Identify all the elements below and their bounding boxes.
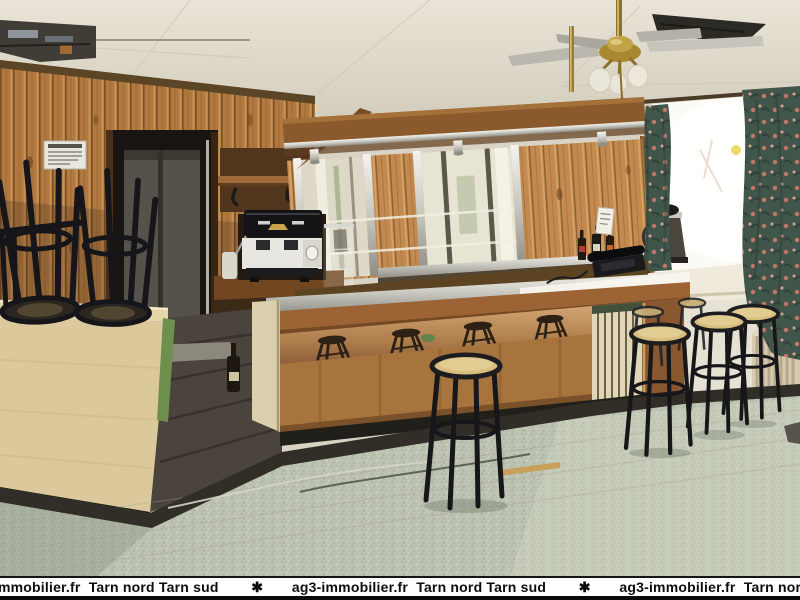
watermark-banner: mmobilier.fr Tarn nord Tarn sud ✱ ag3-im… [0, 576, 800, 600]
bar-left-end-panel [252, 300, 280, 432]
menu-card [596, 207, 615, 235]
espresso-machine [236, 210, 326, 282]
milk-jug [222, 252, 237, 279]
watermark-text: mmobilier.fr Tarn nord Tarn sud ✱ ag3-im… [0, 578, 800, 596]
glass-display-case [324, 224, 354, 290]
photo-scene [0, 0, 800, 600]
wall-sign [44, 141, 86, 169]
bar-interior-photo: mmobilier.fr Tarn nord Tarn sud ✱ ag3-im… [0, 0, 800, 600]
